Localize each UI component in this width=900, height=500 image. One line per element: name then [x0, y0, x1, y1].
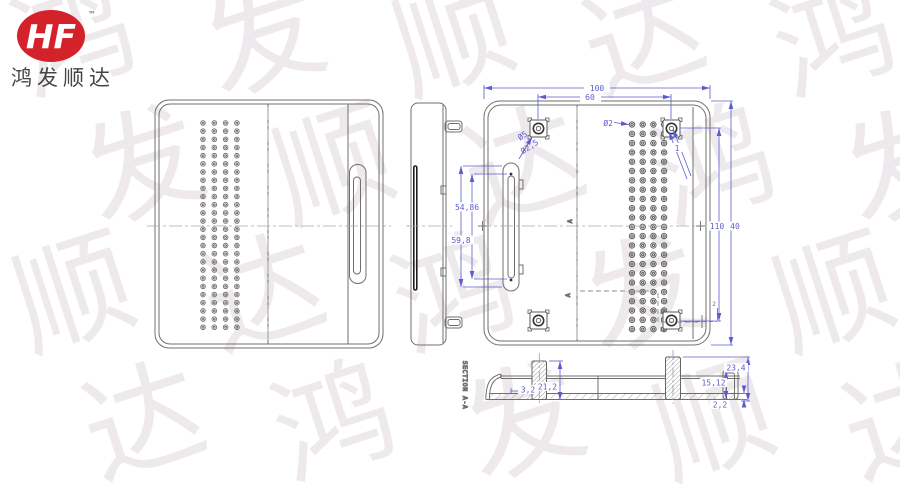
dim-slot-hole-pitch: 54,86	[455, 203, 479, 212]
dim-height-note: 40	[730, 222, 740, 231]
logo-hf-text: HF	[26, 17, 77, 56]
dim-vent-hole-dia: Ø2	[603, 118, 613, 128]
svg-text:鸿: 鸿	[256, 338, 411, 500]
dim-slot-length: 59,8	[451, 236, 470, 245]
section-mark-bend: A	[564, 293, 572, 297]
cad-drawing-page: 鸿发顺达鸿发顺达鸿发顺达鸿发顺达鸿发顺达	[0, 0, 900, 500]
engineering-drawing-canvas: 鸿发顺达鸿发顺达鸿发顺达鸿发顺达鸿发顺达	[0, 0, 900, 500]
company-logo: HF ™	[8, 4, 158, 64]
logo-trademark: ™	[88, 10, 96, 19]
back-slot-clip-bottom	[519, 265, 523, 274]
dim-boss-spacing: 60	[585, 93, 595, 102]
dim-sec-boss-height: 21,2	[538, 383, 557, 392]
section-mark-top: A	[566, 219, 574, 223]
dim-top-width: 100	[590, 84, 605, 93]
dim-sec-step: 3,2	[521, 386, 536, 395]
svg-text:顺: 顺	[636, 338, 791, 500]
svg-text:达: 达	[66, 338, 221, 500]
dim-sec-total-height: 23,4	[726, 364, 745, 373]
company-name: 鸿发顺达	[11, 62, 115, 92]
section-base-hatch	[489, 394, 738, 399]
dim-sec-base-thickness: 2,2	[713, 401, 728, 410]
dim-edge-offset: 2	[712, 301, 716, 308]
section-label: SECTION A-A	[461, 361, 469, 410]
dim-sec-wall-height: 15,12	[701, 379, 725, 388]
dim-boss-v-spacing: 110	[710, 222, 725, 231]
watermark-layer: 鸿发顺达鸿发顺达鸿发顺达鸿发顺达鸿发顺达	[0, 0, 900, 500]
dim-corner-note: 1	[675, 144, 680, 153]
